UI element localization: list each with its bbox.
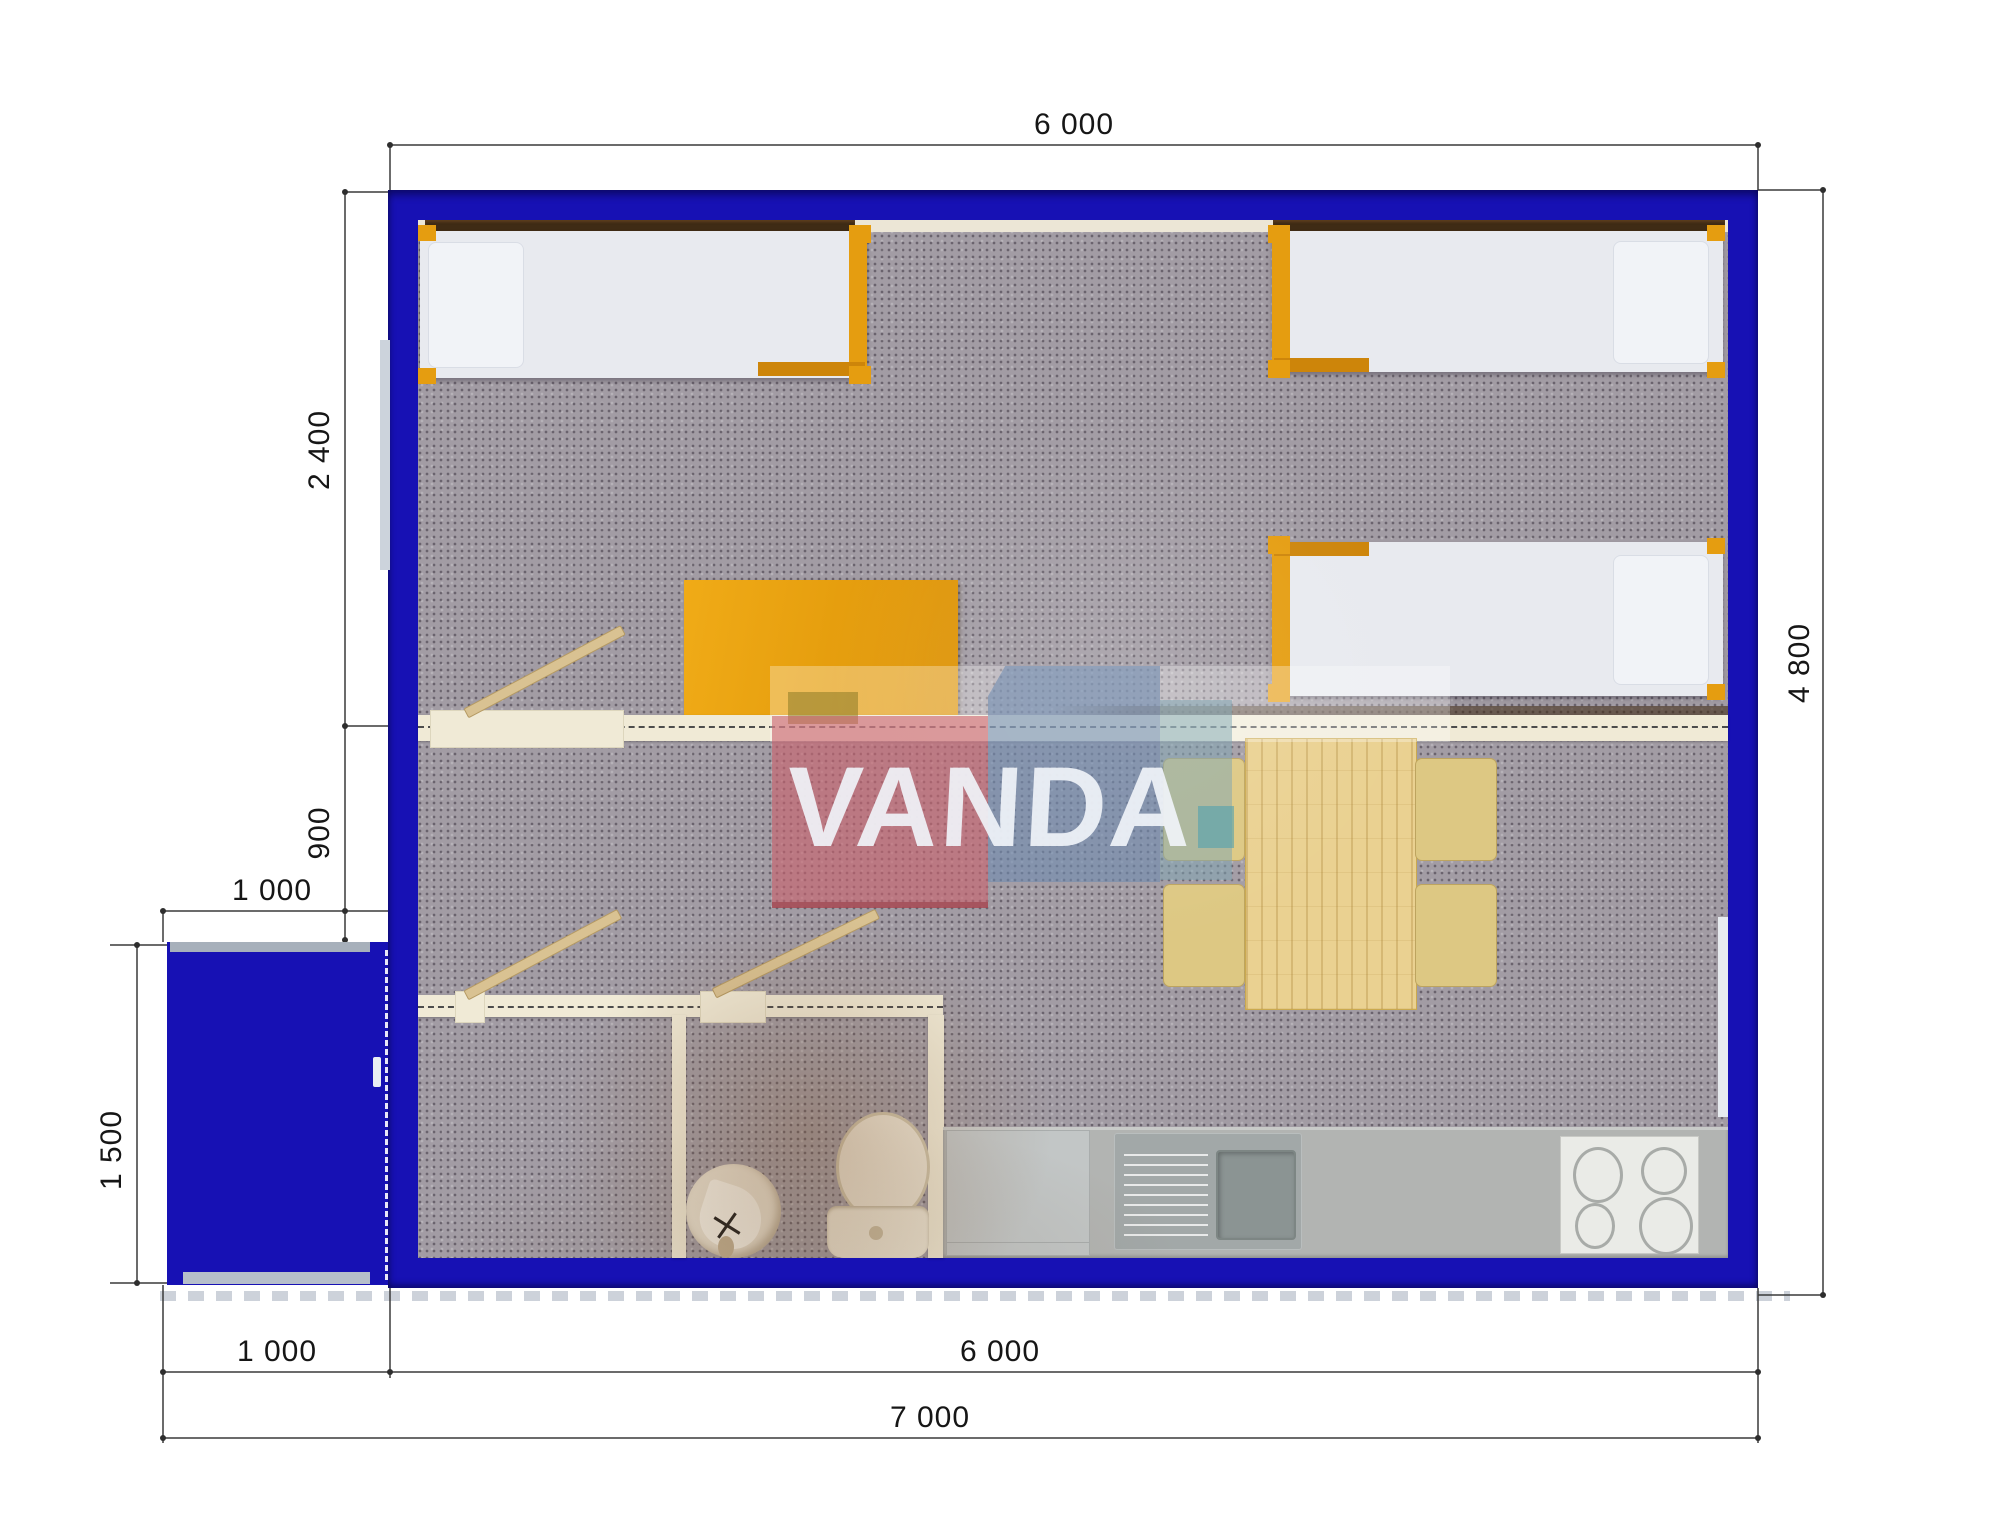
bathroom-wall-horizontal: [418, 995, 943, 1017]
chair: [1415, 758, 1497, 861]
bed-frame-post: [1707, 225, 1725, 241]
desk-table-orange: [684, 580, 958, 717]
dim-room-depth: 2 400: [303, 410, 337, 490]
burner-icon: [1639, 1197, 1693, 1255]
bed-top-left: [420, 231, 867, 378]
bed-middle-right: [1272, 542, 1723, 696]
door-jamb: [700, 991, 766, 1023]
sink-drain: [718, 1236, 734, 1258]
bathroom-wall-right: [928, 1015, 944, 1258]
bathroom-wall-divider: [672, 1015, 686, 1258]
chair: [1163, 758, 1245, 861]
porch-step-top: [170, 942, 370, 952]
bed-frame-post: [418, 368, 436, 384]
window-right-wall: [1718, 917, 1728, 1117]
entrance-porch: [167, 942, 388, 1285]
dim-bottom-porch-width: 1 000: [237, 1335, 317, 1369]
bed-frame-post: [1268, 225, 1290, 243]
dim-porch-depth: 1 500: [95, 1110, 129, 1190]
door-handle-icon: [373, 1057, 381, 1087]
kitchen-appliance: [946, 1130, 1090, 1256]
dim-side-height: 4 800: [1783, 623, 1817, 703]
burner-icon: [1641, 1147, 1687, 1195]
bed-frame-post: [1707, 684, 1725, 700]
floor-plan-canvas: 6 000 2 400 900 1 000 1 500 1 000 6 000 …: [0, 0, 2000, 1537]
pillow: [1613, 241, 1709, 364]
stove-top: [1560, 1136, 1699, 1254]
bed-frame-foot: [849, 231, 867, 378]
burner-icon: [1573, 1147, 1623, 1203]
bed-frame-post: [849, 225, 871, 243]
kitchen-sink-basin: [1216, 1150, 1296, 1240]
drainboard: [1124, 1150, 1208, 1236]
bed-frame-post: [1268, 684, 1290, 702]
pillow: [1613, 555, 1709, 685]
dim-bottom-main-width: 6 000: [960, 1335, 1040, 1369]
dim-porch-width-top: 1 000: [232, 874, 312, 908]
dim-bottom-total-width: 7 000: [890, 1401, 970, 1435]
chair: [1415, 884, 1497, 987]
bed-top-right: [1272, 231, 1723, 372]
pillow: [428, 242, 524, 368]
porch-door-dashed: [385, 950, 388, 1280]
bed-frame-post: [1268, 360, 1290, 378]
dim-hall-depth: 900: [303, 806, 337, 859]
bed-frame-post: [849, 366, 871, 384]
toilet-flush-button: [869, 1226, 883, 1240]
bed-frame-post: [418, 225, 436, 241]
burner-icon: [1575, 1203, 1615, 1249]
bed-frame-foot: [1272, 231, 1290, 372]
dim-top-width: 6 000: [1034, 108, 1114, 142]
window-left-wall: [380, 340, 390, 570]
dining-table: [1245, 738, 1417, 1010]
bed-frame-post: [1268, 536, 1290, 554]
porch-step-bottom: [183, 1272, 370, 1284]
bed-frame-post: [1707, 538, 1725, 554]
chair: [1163, 884, 1245, 987]
door-jamb: [430, 710, 624, 748]
bed-frame-post: [1707, 362, 1725, 378]
bed-frame-foot: [1272, 542, 1290, 696]
